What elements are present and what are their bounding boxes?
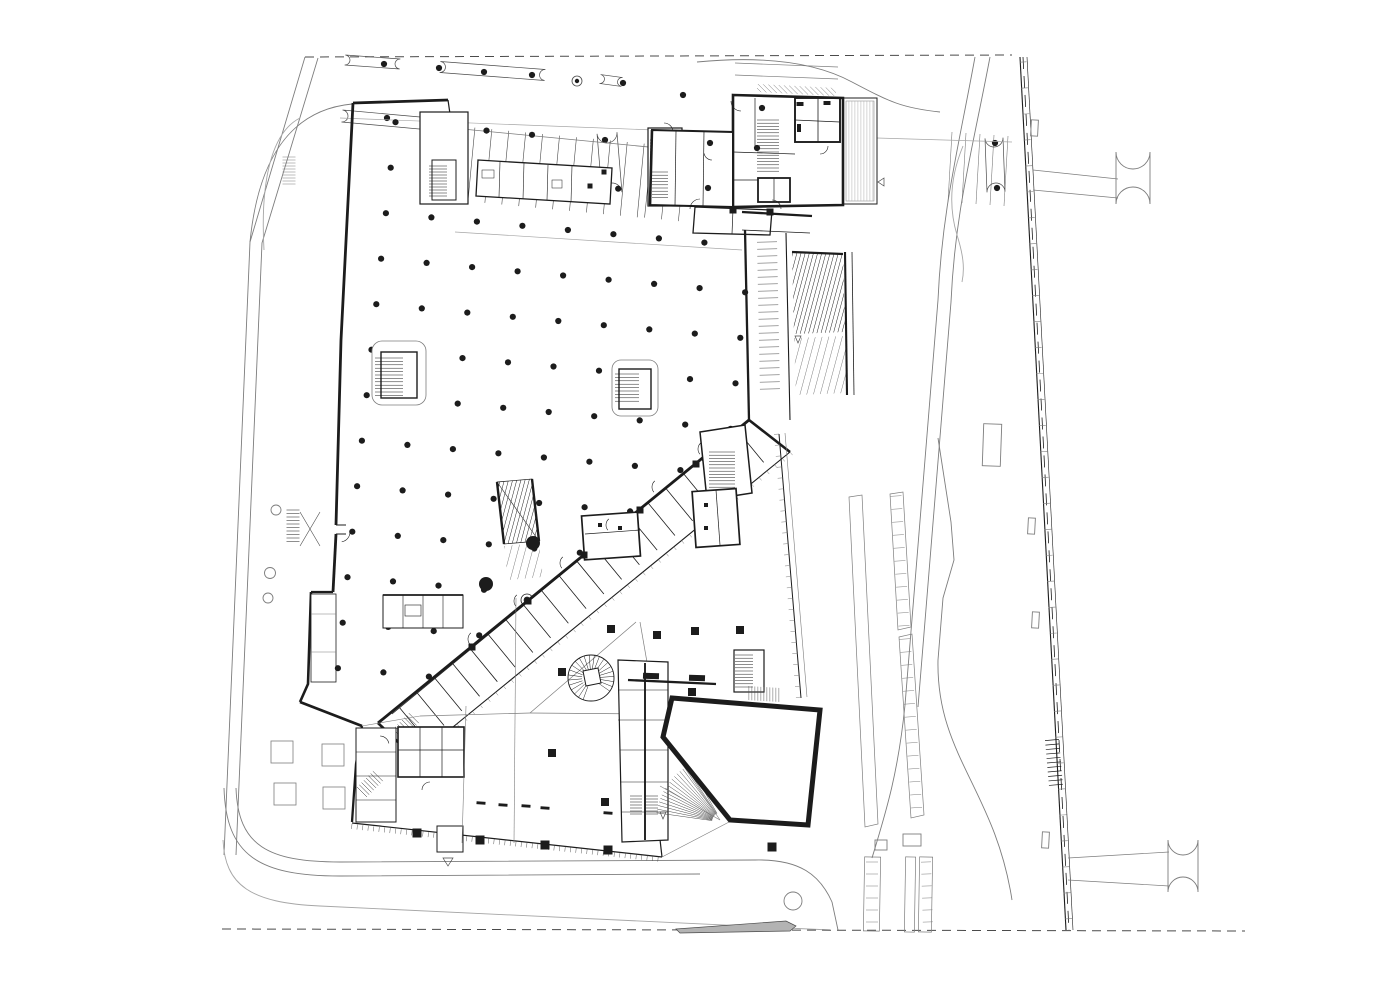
floor-plan-page [0,0,1400,990]
floor-plan-drawing [0,0,1400,990]
